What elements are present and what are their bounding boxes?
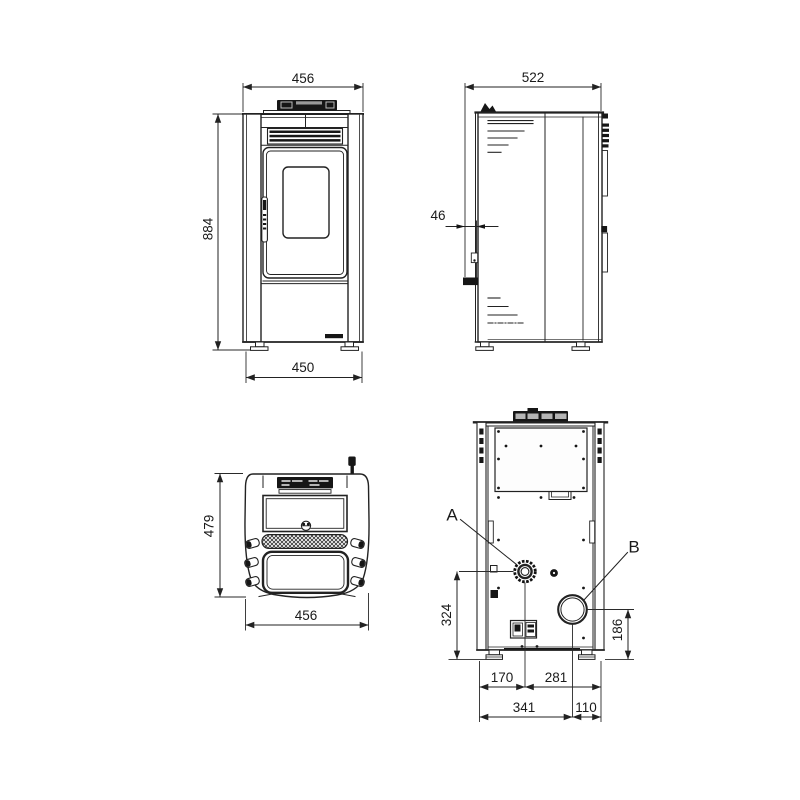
slot-left: [488, 521, 493, 543]
door-edge-profile-upper: [602, 151, 607, 197]
panel-nub: [528, 408, 539, 411]
leader-line-b: [584, 553, 628, 601]
antenna-cap: [348, 457, 355, 466]
screw: [582, 487, 585, 490]
side-strip-right: [595, 422, 604, 650]
rear-stove-body: [474, 408, 607, 659]
display-segment: [309, 480, 318, 482]
rear-vent-lines-bottom: [488, 298, 525, 323]
screw: [582, 637, 585, 640]
slot-right: [590, 521, 595, 543]
upper-back-panel: [495, 428, 587, 492]
screw: [582, 458, 585, 461]
small-fitting-box: [491, 566, 498, 573]
louver-fins-profile: [602, 124, 609, 148]
screw: [497, 539, 500, 542]
side-slots-left: [244, 538, 260, 587]
display-segment: [282, 480, 291, 482]
front-stove-body: [243, 100, 363, 350]
display-segment: [296, 101, 322, 104]
foot-rear: [476, 342, 494, 350]
screw: [497, 496, 500, 499]
screw: [536, 645, 539, 648]
rear-dim-intake-height: 324: [439, 572, 514, 660]
fire-door: [262, 148, 347, 279]
display-segment: [555, 414, 567, 420]
stove-technical-drawing: 456 884 450: [0, 0, 800, 800]
display-segment: [528, 414, 539, 420]
front-view: 456 884 450: [201, 71, 364, 383]
side-view: 522 46: [430, 70, 609, 350]
top-corner-cap: [603, 114, 609, 119]
side-dim-rear-offset: 46: [430, 208, 498, 278]
port-b-outer: [558, 595, 587, 624]
foot-base: [341, 347, 359, 351]
antenna: [348, 457, 355, 476]
screw: [582, 587, 585, 590]
top-stove-body: [244, 457, 369, 598]
screw: [505, 445, 508, 448]
vent-dash: [479, 429, 483, 435]
display-segment: [282, 484, 290, 486]
rear-vent-lines-top: [488, 121, 533, 153]
screw: [497, 487, 500, 490]
dim-intake-height: 324: [439, 603, 454, 626]
vent-dash: [598, 429, 602, 435]
screw: [497, 458, 500, 461]
dim-flue-from-left: 341: [513, 700, 536, 715]
top-dim-width: 456: [246, 593, 369, 631]
fin: [602, 144, 609, 147]
vent-dash: [598, 448, 602, 454]
foot-right: [341, 342, 359, 350]
foot-stem: [345, 342, 354, 347]
foot-stem: [481, 342, 490, 347]
vent-dash: [598, 457, 602, 463]
screw: [497, 430, 500, 433]
louver-slat: [270, 139, 341, 142]
screw: [575, 445, 578, 448]
foot-front: [572, 342, 590, 350]
foot-stem: [582, 650, 593, 655]
junction-box-dot: [473, 259, 475, 261]
fin: [602, 129, 609, 132]
fin: [602, 134, 609, 137]
louver-slat: [270, 131, 341, 134]
display-segment: [319, 480, 329, 482]
switch-bar: [528, 625, 535, 628]
dim-side-depth: 522: [522, 70, 545, 85]
handle-rib: [263, 223, 266, 225]
label-flue: B: [628, 538, 639, 557]
foot-stem: [256, 342, 265, 347]
louver-vent: [268, 129, 343, 145]
dim-side-rear-offset: 46: [430, 208, 445, 223]
hopper-lid-handle-profile: [480, 103, 497, 113]
screw: [573, 496, 576, 499]
rear-labels: A B: [446, 506, 639, 601]
air-grille: [262, 535, 348, 549]
handle-rib: [263, 219, 266, 221]
screw: [540, 445, 543, 448]
side-dim-depth: 522: [465, 70, 601, 277]
front-top-door: [263, 552, 348, 593]
side-panel-left: [243, 114, 261, 342]
lid-emblem: [301, 521, 310, 530]
foot-base: [572, 347, 590, 351]
foot-stem: [489, 650, 500, 655]
foot-base: [251, 347, 269, 351]
rear-view: A B 324 186 170 281: [439, 408, 640, 722]
dim-intake-to-right: 281: [545, 670, 568, 685]
display-segment: [542, 414, 553, 420]
fin: [602, 124, 609, 127]
dim-front-top-width: 456: [292, 71, 315, 86]
screw: [540, 496, 543, 499]
dim-front-height: 884: [201, 217, 216, 240]
switch-bar: [528, 630, 535, 633]
arrowhead: [457, 224, 466, 229]
brand-badge: [325, 334, 343, 338]
rear-pipe-stub: [463, 278, 478, 286]
control-panel: [277, 477, 333, 493]
screw: [521, 645, 524, 648]
door-outer: [263, 552, 348, 593]
emblem-dot: [302, 523, 305, 526]
screw: [582, 430, 585, 433]
display-segment: [516, 414, 526, 420]
power-inlet: [511, 621, 537, 639]
display-unit: [277, 477, 333, 488]
top-dim-depth: 479: [202, 474, 247, 598]
vent-dash: [598, 438, 602, 444]
dim-top-width: 456: [295, 608, 318, 623]
top-view: 479 456: [202, 457, 370, 631]
vent-dash: [479, 438, 483, 444]
control-panel: [264, 100, 351, 114]
fastener-center: [553, 572, 555, 574]
label-air-intake: A: [446, 506, 458, 525]
side-slots-right: [350, 538, 366, 587]
panel-notch-inner: [552, 492, 569, 498]
handle-grip: [263, 200, 266, 210]
dim-intake-from-left: 170: [491, 670, 514, 685]
display-segment: [292, 480, 303, 482]
flue-outlet-port-B: [558, 595, 587, 624]
panel-base: [279, 490, 331, 494]
screw: [582, 539, 585, 542]
side-panel-right: [348, 114, 363, 342]
dim-flue-to-right: 110: [575, 700, 597, 715]
screw: [497, 587, 500, 590]
door-edge-profile-lower: [602, 233, 607, 272]
dim-top-depth: 479: [202, 515, 217, 538]
door-handle: [262, 197, 268, 242]
door-handle-profile: [601, 226, 607, 232]
fin: [602, 139, 609, 142]
vent-dash: [479, 448, 483, 454]
foot-base: [476, 347, 494, 351]
foot-left: [251, 342, 269, 350]
door-frame-inner: [267, 151, 344, 275]
fastener-flower: [550, 569, 558, 577]
foot-stem: [577, 342, 586, 347]
handle-rib: [263, 228, 266, 230]
display-segment: [310, 484, 320, 486]
louver-slat: [270, 135, 341, 138]
door-window: [283, 167, 329, 238]
air-intake-port-A: [514, 561, 536, 583]
socket-dark: [515, 625, 521, 632]
foot-left: [486, 650, 503, 659]
emblem-dot: [307, 523, 310, 526]
control-panel: [513, 408, 568, 422]
foot-right: [579, 650, 596, 659]
front-dim-base-width: 450: [246, 352, 362, 384]
handle-rib: [263, 214, 266, 216]
dim-flue-height: 186: [610, 619, 625, 642]
dim-front-base-width: 450: [292, 360, 315, 375]
vent-dash: [479, 457, 483, 463]
panel-notch: [549, 492, 571, 500]
small-dark-fitting: [491, 590, 499, 598]
